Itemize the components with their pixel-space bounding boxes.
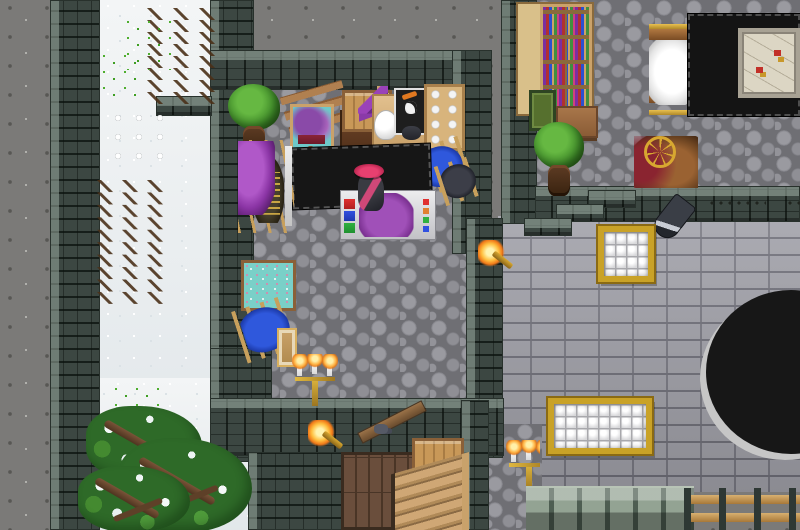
- stair-room-wall-west-fill: [248, 452, 344, 530]
- lattice-window-wide[interactable]: [548, 398, 652, 454]
- game-viewport[interactable]: [0, 0, 800, 530]
- wall-torch-corner[interactable]: [478, 240, 516, 290]
- wall-chain-short: [786, 198, 800, 214]
- shoes-on-board[interactable]: [374, 424, 388, 434]
- battlement-wall-top: [526, 486, 694, 530]
- dark-item-on-table[interactable]: [402, 126, 421, 140]
- wall-loom-purple-cloth[interactable]: [238, 140, 294, 233]
- player-character[interactable]: [349, 164, 393, 222]
- grass-tufts-west: [100, 52, 144, 98]
- facade-step-block-low: [524, 218, 572, 236]
- framed-map[interactable]: [738, 28, 800, 98]
- spinning-wheel[interactable]: [634, 136, 698, 188]
- wall-chain: [708, 198, 766, 211]
- wall-torch-lower[interactable]: [308, 420, 356, 452]
- candelabra-southeast[interactable]: [506, 440, 540, 492]
- snowballs-on-path: [112, 112, 168, 172]
- snow-twigs-mid: [96, 180, 164, 304]
- candelabra-shop[interactable]: [292, 354, 340, 406]
- wooden-fence: [684, 488, 800, 530]
- lattice-window-upper[interactable]: [598, 226, 654, 282]
- potted-bush-northeast[interactable]: [534, 122, 584, 200]
